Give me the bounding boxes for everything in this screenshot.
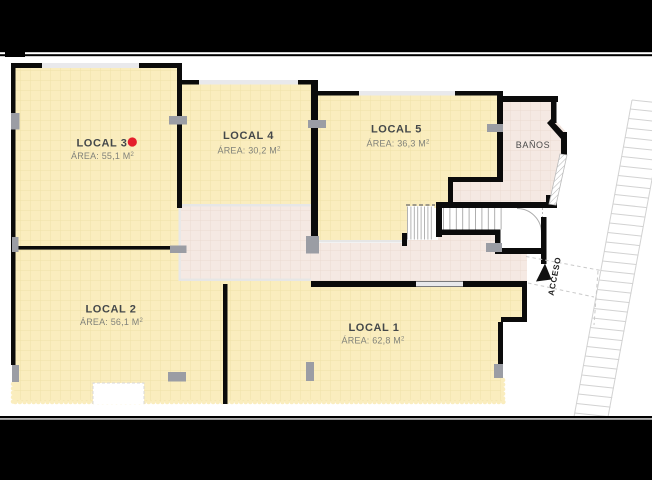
svg-text:ÁREA: 30,2 M2: ÁREA: 30,2 M2 xyxy=(218,146,281,156)
svg-text:ÁREA: 36,3 M2: ÁREA: 36,3 M2 xyxy=(367,139,430,149)
svg-text:ÁREA: 62,8 M2: ÁREA: 62,8 M2 xyxy=(342,336,405,346)
svg-text:ÁREA: 56,1 M2: ÁREA: 56,1 M2 xyxy=(80,317,143,327)
svg-text:LOCAL 5: LOCAL 5 xyxy=(371,124,422,136)
svg-text:LOCAL 4: LOCAL 4 xyxy=(223,130,274,142)
svg-text:LOCAL 1: LOCAL 1 xyxy=(348,322,399,334)
svg-text:LOCAL 2: LOCAL 2 xyxy=(85,304,136,316)
svg-text:BAÑOS: BAÑOS xyxy=(516,140,551,150)
svg-text:ÁREA: 55,1 M2: ÁREA: 55,1 M2 xyxy=(71,151,134,161)
svg-text:LOCAL 3: LOCAL 3 xyxy=(76,138,127,150)
